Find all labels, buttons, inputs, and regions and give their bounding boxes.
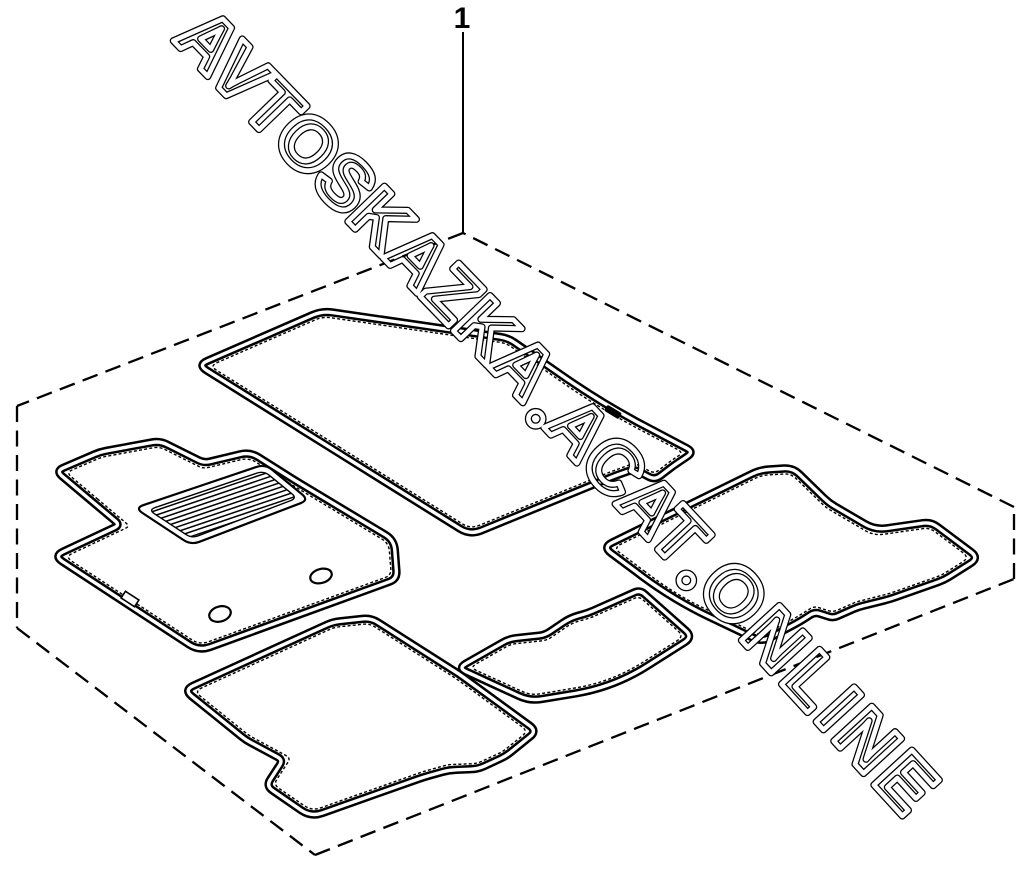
svg-text:1: 1 (454, 2, 471, 35)
